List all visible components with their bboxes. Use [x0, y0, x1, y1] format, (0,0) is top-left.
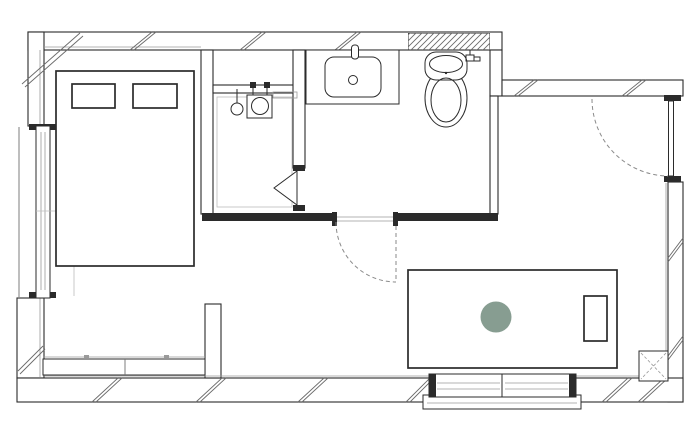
pillow-right	[133, 84, 177, 108]
entry-door-hinge-block-bottom	[664, 176, 681, 182]
entry-door-hinge-block-top	[664, 95, 681, 101]
sliding-window-jamb-left	[429, 374, 436, 397]
wall-bathroom-right	[490, 96, 498, 214]
wall-partition-bedroom	[201, 50, 213, 214]
wall-right	[668, 182, 683, 402]
toilet	[425, 50, 480, 127]
shower-door	[274, 171, 297, 205]
chair	[584, 296, 607, 341]
wall-bottom-left	[17, 378, 430, 402]
shower-valve-right	[264, 82, 270, 88]
sliding-window-bottom	[423, 374, 581, 409]
wall-shower-right	[293, 50, 305, 168]
bench-handle-left	[84, 355, 89, 358]
toilet-valve	[466, 55, 474, 61]
partition-stub-wall	[205, 304, 221, 378]
bench-handle-right	[164, 355, 169, 358]
storage-bench	[43, 359, 205, 375]
entry-door	[592, 99, 674, 176]
wall-entry-step	[490, 50, 502, 96]
entry-door-swing-arc	[592, 99, 669, 176]
wall-entry-top	[502, 80, 683, 96]
bathroom-door-jamb-right	[393, 212, 398, 226]
floorplan-svg	[0, 0, 700, 436]
vanity	[306, 45, 399, 104]
round-stool	[481, 302, 512, 333]
floorplan-page	[0, 0, 700, 436]
wall-bottom-right	[575, 378, 683, 402]
entry-door-leaf	[669, 101, 674, 176]
pillow-left	[72, 84, 115, 108]
column	[639, 351, 668, 381]
left-window-frame	[36, 126, 50, 298]
bathroom-door	[336, 217, 396, 282]
basin-faucet	[352, 45, 359, 59]
bathroom-door-swing-arc	[336, 222, 396, 282]
toilet-seat-unit	[425, 52, 467, 80]
sliding-window-jamb-right	[569, 374, 576, 397]
bathroom-bottom-wall-right	[393, 213, 498, 221]
shower-valve-left	[250, 82, 256, 88]
bathroom-bottom-wall-left	[202, 213, 335, 221]
furniture	[43, 71, 617, 375]
wall-left-upper	[28, 32, 44, 126]
shower-head	[231, 103, 243, 115]
shower-door-jamb-bottom	[293, 205, 305, 211]
toilet-button	[445, 72, 447, 74]
shower-door-jamb-top	[293, 165, 305, 171]
